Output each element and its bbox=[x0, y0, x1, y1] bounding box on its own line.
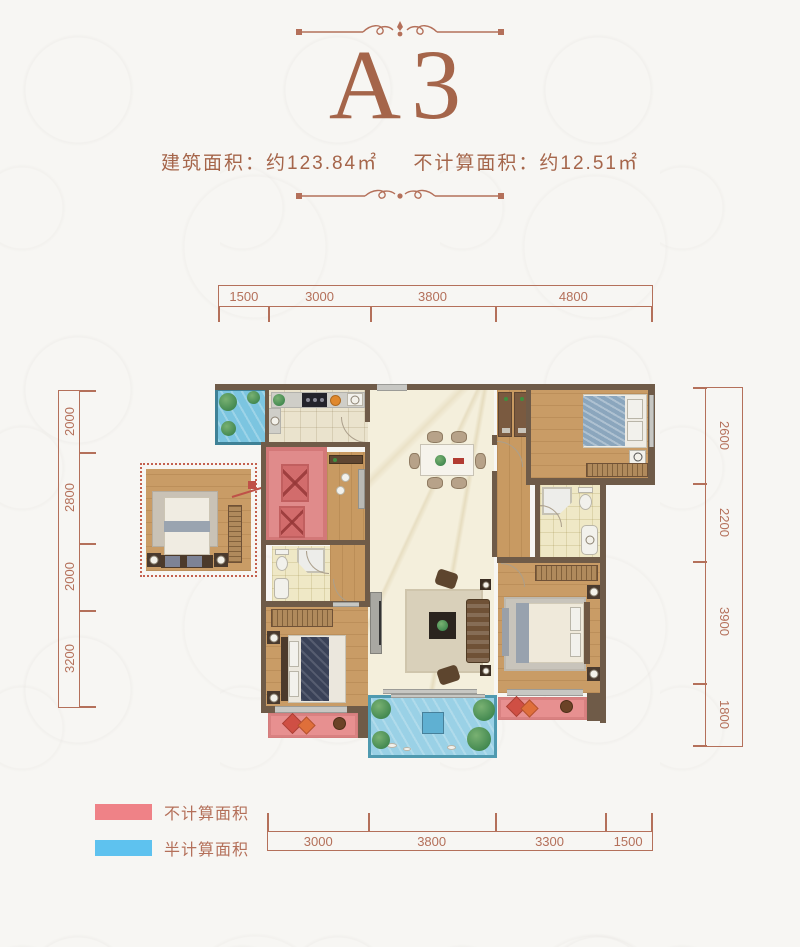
nightstand-icon bbox=[587, 667, 601, 681]
dining-table-icon bbox=[420, 444, 474, 476]
plant-icon bbox=[273, 394, 285, 406]
dimension-label: 3800 bbox=[418, 289, 447, 304]
bed-icon bbox=[516, 603, 529, 663]
legend-item: 半计算面积 bbox=[95, 836, 275, 860]
wall bbox=[535, 485, 540, 557]
wardrobe-icon bbox=[271, 609, 333, 627]
dimension-segment: 3000 bbox=[268, 832, 368, 850]
pillow-icon bbox=[289, 641, 299, 667]
pillow-icon bbox=[289, 671, 299, 697]
dimension-segment: 1500 bbox=[604, 832, 652, 850]
legend: 不计算面积 半计算面积 bbox=[95, 800, 275, 860]
plant-icon bbox=[467, 727, 491, 751]
bed-icon bbox=[164, 521, 210, 532]
sliding-door bbox=[391, 694, 485, 698]
dimension-label: 3200 bbox=[62, 644, 77, 673]
tv-cabinet-icon bbox=[370, 592, 382, 654]
wardrobe-icon bbox=[586, 463, 648, 477]
dimension-right: 2600 2200 3900 1800 bbox=[705, 387, 743, 747]
wall bbox=[358, 706, 368, 738]
detail-inset-box bbox=[140, 463, 257, 577]
bed-icon bbox=[584, 602, 590, 664]
nightstand-icon bbox=[267, 631, 280, 644]
uncounted-area-swatch-icon bbox=[95, 804, 152, 820]
pebble-icon bbox=[447, 745, 456, 750]
patio-table-icon bbox=[422, 712, 444, 734]
floorplan-page: A3 建筑面积：约123.84㎡ 不计算面积：约12.51㎡ 1500 3000… bbox=[0, 0, 800, 947]
pillow-icon bbox=[627, 399, 643, 419]
dimension-label: 2000 bbox=[62, 562, 77, 591]
unit-title: A3 bbox=[0, 30, 800, 140]
dimension-segment: 2000 bbox=[59, 543, 79, 610]
floor-plan bbox=[215, 375, 655, 760]
stool-icon bbox=[336, 486, 345, 495]
window bbox=[275, 706, 347, 713]
pillow-icon bbox=[279, 506, 305, 538]
table-icon bbox=[333, 717, 346, 730]
dimension-label: 3000 bbox=[305, 289, 334, 304]
wall bbox=[492, 435, 497, 445]
wall bbox=[526, 478, 650, 485]
dimension-segment: 2200 bbox=[706, 483, 742, 561]
dimension-label: 2000 bbox=[62, 407, 77, 436]
wall bbox=[265, 388, 269, 445]
wall bbox=[492, 471, 497, 557]
wall bbox=[365, 384, 370, 422]
wall bbox=[600, 478, 606, 723]
wall bbox=[261, 540, 370, 545]
plant-icon bbox=[372, 731, 390, 749]
dimension-segment: 2600 bbox=[706, 388, 742, 483]
pillow-icon bbox=[281, 464, 309, 502]
dimension-bottom: 3000 3800 3300 1500 bbox=[267, 831, 653, 851]
dimension-label: 3800 bbox=[417, 834, 446, 849]
flourish-bottom-icon bbox=[295, 185, 505, 211]
dimension-segment: 3900 bbox=[706, 561, 742, 682]
chair-icon bbox=[427, 431, 443, 443]
dimension-label: 3300 bbox=[535, 834, 564, 849]
pillow-icon bbox=[627, 421, 643, 441]
sofa-icon bbox=[466, 599, 490, 663]
chair-icon bbox=[427, 477, 443, 489]
excluded-area-text: 不计算面积：约12.51㎡ bbox=[413, 153, 639, 174]
stove-icon bbox=[302, 393, 327, 407]
stool-icon bbox=[341, 473, 350, 482]
dimension-label: 2800 bbox=[62, 483, 77, 512]
wall bbox=[261, 445, 266, 713]
nightstand-icon bbox=[267, 691, 280, 704]
dimension-label: 4800 bbox=[559, 289, 588, 304]
dimension-segment: 3200 bbox=[59, 610, 79, 707]
chair-icon bbox=[451, 431, 467, 443]
side-table-icon bbox=[480, 579, 491, 590]
wardrobe-icon bbox=[228, 505, 242, 563]
area-summary: 建筑面积：约123.84㎡ 不计算面积：约12.51㎡ bbox=[0, 148, 800, 175]
wall bbox=[526, 390, 531, 485]
plant-icon bbox=[247, 391, 260, 404]
plant-icon bbox=[473, 699, 495, 721]
wardrobe-icon bbox=[535, 565, 598, 581]
dimension-label: 1500 bbox=[229, 289, 258, 304]
wall bbox=[215, 384, 377, 390]
legend-label: 半计算面积 bbox=[164, 836, 249, 860]
bench-icon bbox=[502, 608, 509, 656]
pillow-icon bbox=[570, 633, 581, 657]
cabinet-icon bbox=[329, 455, 363, 464]
door-threshold bbox=[333, 602, 359, 607]
legend-item: 不计算面积 bbox=[95, 800, 275, 824]
nightstand-icon bbox=[587, 585, 601, 599]
bed-icon bbox=[281, 637, 288, 701]
dimension-label: 2200 bbox=[716, 508, 731, 537]
coffee-table-icon bbox=[429, 612, 456, 639]
half-counted-area-swatch-icon bbox=[95, 840, 152, 856]
wall bbox=[587, 693, 600, 721]
bed-icon bbox=[583, 396, 625, 446]
dimension-left: 2000 2800 2000 3200 bbox=[58, 390, 80, 708]
dimension-segment: 2000 bbox=[59, 391, 79, 453]
window bbox=[649, 395, 654, 447]
pebble-icon bbox=[403, 747, 411, 751]
sink-icon bbox=[347, 393, 363, 406]
toilet-icon bbox=[275, 549, 289, 555]
dimension-segment: 4800 bbox=[495, 286, 652, 306]
dimension-segment: 2800 bbox=[59, 453, 79, 543]
nightstand-icon bbox=[629, 450, 646, 464]
dimension-label: 1800 bbox=[716, 700, 731, 729]
shelf-icon bbox=[358, 469, 365, 509]
vanity-icon bbox=[581, 525, 598, 555]
wall bbox=[497, 557, 605, 563]
pot-icon bbox=[330, 395, 341, 406]
bed-icon bbox=[301, 637, 329, 701]
entry-threshold bbox=[377, 384, 407, 391]
dimension-segment: 1800 bbox=[706, 682, 742, 746]
wall bbox=[365, 447, 370, 607]
pillow-icon bbox=[570, 607, 581, 631]
table-icon bbox=[560, 700, 573, 713]
chair-icon bbox=[475, 453, 486, 469]
closet-icon bbox=[498, 392, 512, 437]
nightstand-icon bbox=[214, 553, 228, 567]
legend-label: 不计算面积 bbox=[164, 800, 249, 824]
side-table-icon bbox=[480, 665, 491, 676]
dimension-label: 1500 bbox=[614, 834, 643, 849]
wall bbox=[261, 442, 370, 447]
dimension-segment: 3300 bbox=[495, 832, 604, 850]
built-area-text: 建筑面积：约123.84㎡ bbox=[161, 153, 378, 174]
plant-icon bbox=[221, 421, 236, 436]
dimension-top: 1500 3000 3800 4800 bbox=[218, 285, 653, 307]
chair-icon bbox=[409, 453, 420, 469]
dimension-label: 2600 bbox=[716, 421, 731, 450]
bathroom-sink-icon bbox=[274, 578, 289, 599]
toilet-icon bbox=[276, 556, 288, 571]
nightstand-icon bbox=[147, 553, 161, 567]
dimension-segment: 3800 bbox=[368, 832, 494, 850]
dimension-segment: 3800 bbox=[370, 286, 494, 306]
wall bbox=[407, 384, 655, 390]
window bbox=[507, 689, 583, 696]
plant-icon bbox=[219, 393, 237, 411]
dimension-label: 3900 bbox=[716, 607, 731, 636]
chair-icon bbox=[451, 477, 467, 489]
toilet-icon bbox=[579, 494, 592, 510]
dimension-segment: 1500 bbox=[219, 286, 269, 306]
bed-icon bbox=[161, 555, 213, 568]
dimension-label: 3000 bbox=[304, 834, 333, 849]
plant-icon bbox=[371, 699, 391, 719]
toilet-icon bbox=[578, 487, 593, 493]
dimension-segment: 3000 bbox=[269, 286, 371, 306]
counter-icon bbox=[268, 408, 281, 434]
